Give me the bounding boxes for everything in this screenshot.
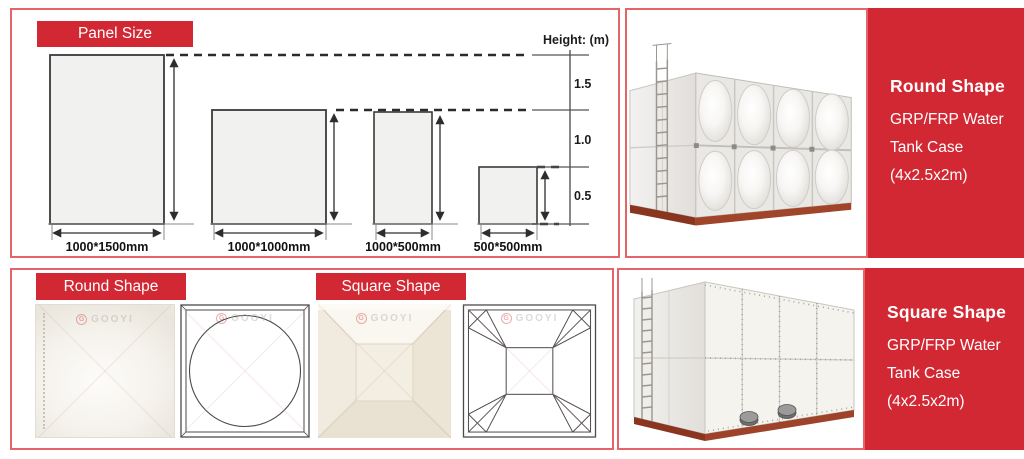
panel-flange <box>43 313 45 429</box>
round-shape-title: Round Shape <box>890 76 1024 97</box>
panel-label-1000x1500: 1000*1500mm <box>66 240 149 254</box>
square-panel-drawing-svg <box>462 304 597 438</box>
gooyi-logo-icon: G <box>501 313 512 324</box>
round-panel-drawing: G GOOYI <box>180 304 310 438</box>
panel-dimension-labels: 1000*1500mm 1000*1000mm 1000*500mm 500*5… <box>66 240 543 254</box>
gooyi-logo-icon: G <box>76 314 87 325</box>
square-panel-photo-svg <box>318 304 451 438</box>
panel-rects <box>50 55 537 224</box>
square-tank-illustration <box>619 270 863 448</box>
square-shape-line3: (4x2.5x2m) <box>887 393 1024 411</box>
gooyi-logo-icon: G <box>356 313 367 324</box>
brand-watermark: G GOOYI <box>180 313 310 324</box>
brand-watermark: G GOOYI <box>318 313 451 324</box>
height-axis: Height: (m) 1.5 1.0 0.5 <box>532 33 609 226</box>
square-shape-label: Square Shape <box>316 273 466 300</box>
panel-shapes-box: Round Shape Square Shape G GOOYI <box>10 268 614 450</box>
square-panel-photo: G GOOYI <box>318 304 451 438</box>
axis-tick-1-5: 1.5 <box>574 77 591 91</box>
panel-size-box: Height: (m) 1.5 1.0 0.5 1000*1500mm 1000… <box>10 8 620 258</box>
round-panel-photo: G GOOYI <box>35 304 175 438</box>
height-axis-title: Height: (m) <box>543 33 609 47</box>
square-panel-drawing: G GOOYI <box>462 304 597 438</box>
square-shape-line1: GRP/FRP Water <box>887 337 1024 355</box>
axis-tick-0-5: 0.5 <box>574 189 591 203</box>
square-shape-info-panel: Square Shape GRP/FRP Water Tank Case (4x… <box>865 268 1024 450</box>
watermark-text: GOOYI <box>91 314 134 325</box>
panel-size-label: Panel Size <box>37 21 193 47</box>
brand-watermark: G GOOYI <box>36 314 174 325</box>
page: Height: (m) 1.5 1.0 0.5 1000*1500mm 1000… <box>0 0 1024 459</box>
square-tank-photo <box>617 268 865 450</box>
axis-tick-1-0: 1.0 <box>574 133 591 147</box>
round-panel-drawing-svg <box>180 304 310 438</box>
round-shape-info-panel: Round Shape GRP/FRP Water Tank Case (4x2… <box>868 8 1024 258</box>
round-shape-line2: Tank Case <box>890 139 1024 157</box>
round-shape-line1: GRP/FRP Water <box>890 111 1024 129</box>
square-shape-line2: Tank Case <box>887 365 1024 383</box>
panel-label-500x500: 500*500mm <box>474 240 543 254</box>
square-shape-title: Square Shape <box>887 302 1024 323</box>
watermark-text: GOOYI <box>231 313 274 324</box>
round-shape-label: Round Shape <box>36 273 186 300</box>
round-tank-illustration <box>627 10 866 256</box>
panel-label-1000x500: 1000*500mm <box>365 240 441 254</box>
brand-watermark: G GOOYI <box>462 313 597 324</box>
round-shape-line3: (4x2.5x2m) <box>890 167 1024 185</box>
panel-label-1000x1000: 1000*1000mm <box>228 240 311 254</box>
watermark-text: GOOYI <box>516 313 559 324</box>
watermark-text: GOOYI <box>371 313 414 324</box>
dimension-ticks <box>48 224 564 240</box>
round-tank-photo <box>625 8 868 258</box>
gooyi-logo-icon: G <box>216 313 227 324</box>
